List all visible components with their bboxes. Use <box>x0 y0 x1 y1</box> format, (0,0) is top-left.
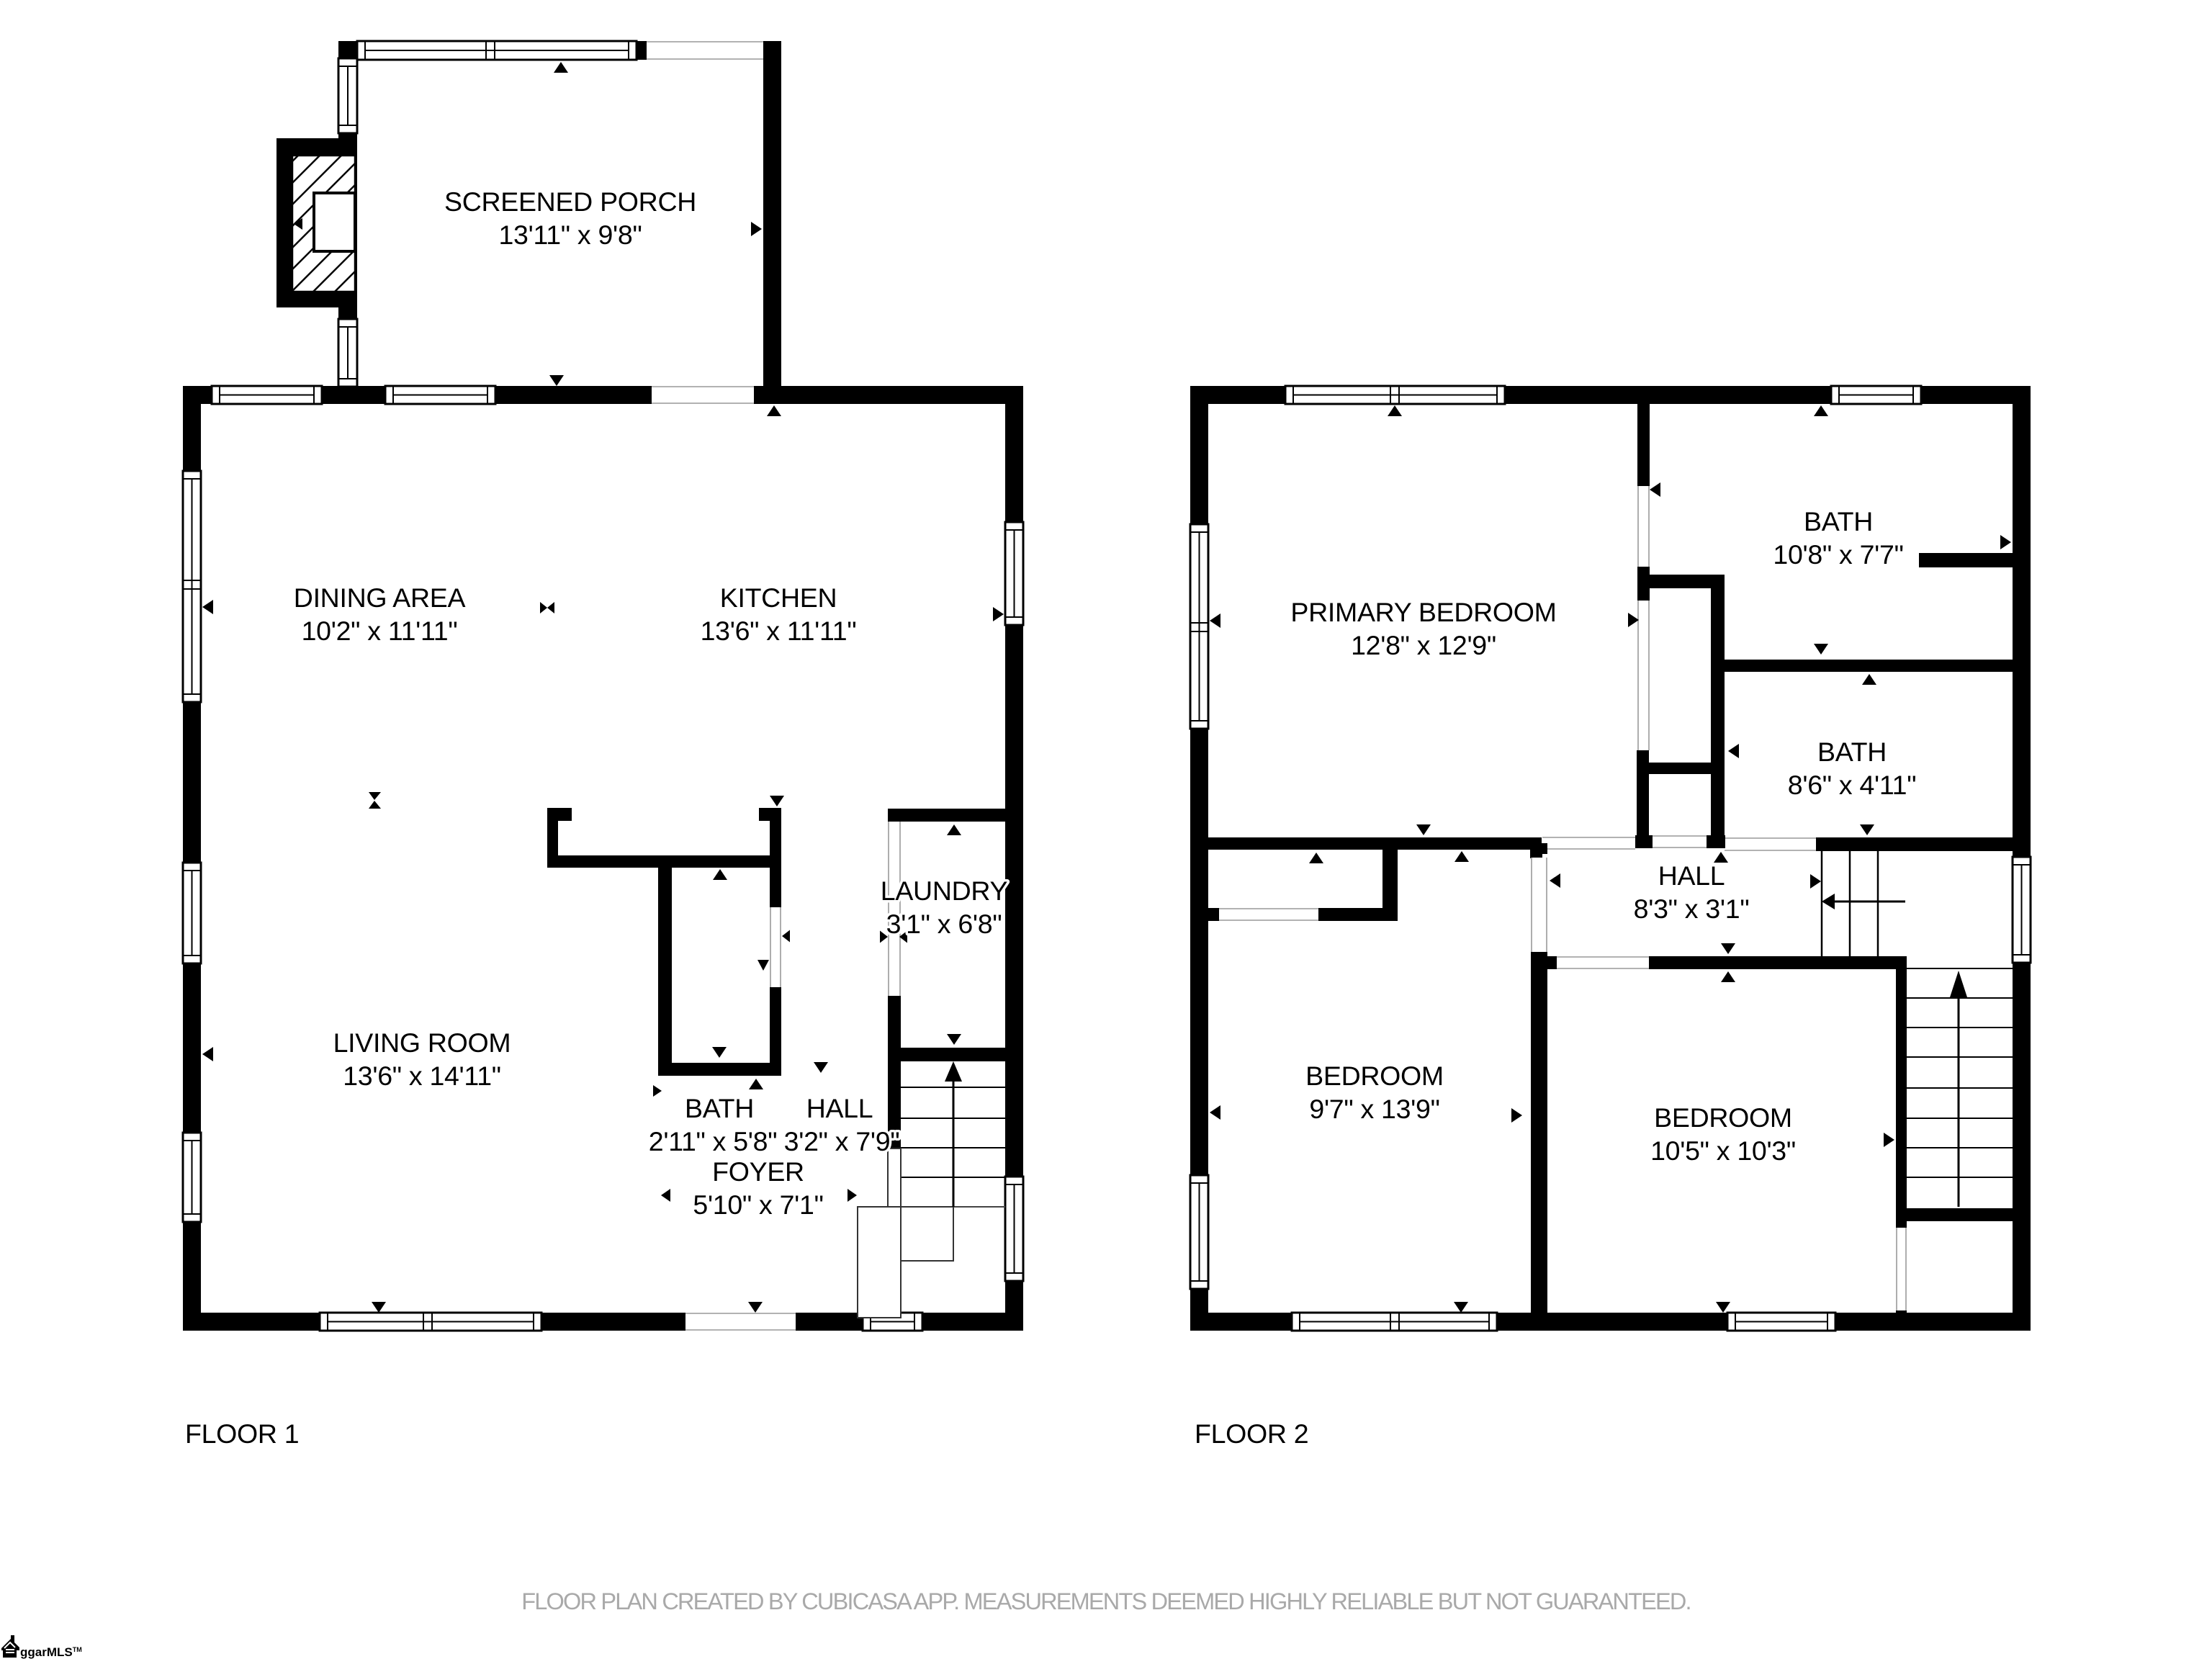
svg-text:FOYER: FOYER <box>712 1156 804 1187</box>
svg-text:13'6" x 11'11": 13'6" x 11'11" <box>701 616 857 646</box>
svg-text:12'8" x 12'9": 12'8" x 12'9" <box>1351 630 1496 660</box>
svg-text:13'6" x 14'11": 13'6" x 14'11" <box>343 1061 501 1091</box>
svg-text:FLOOR PLAN CREATED BY CUBICASA: FLOOR PLAN CREATED BY CUBICASA APP. MEAS… <box>521 1588 1691 1614</box>
svg-text:FLOOR 1: FLOOR 1 <box>185 1419 299 1449</box>
svg-text:DINING AREA: DINING AREA <box>294 583 466 613</box>
svg-text:BATH: BATH <box>1817 737 1887 767</box>
svg-text:BATH: BATH <box>685 1093 754 1123</box>
svg-text:10'2" x 11'11": 10'2" x 11'11" <box>302 616 458 646</box>
svg-text:BEDROOM: BEDROOM <box>1305 1061 1444 1091</box>
svg-text:LIVING ROOM: LIVING ROOM <box>333 1028 511 1058</box>
svg-text:BEDROOM: BEDROOM <box>1654 1102 1792 1133</box>
svg-text:LAUNDRY: LAUNDRY <box>881 876 1008 906</box>
svg-text:FLOOR 2: FLOOR 2 <box>1195 1419 1308 1449</box>
svg-text:10'8" x 7'7": 10'8" x 7'7" <box>1773 539 1903 570</box>
svg-text:HALL: HALL <box>806 1093 873 1123</box>
svg-text:3'2" x 7'9": 3'2" x 7'9" <box>784 1126 900 1156</box>
svg-text:9'7" x 13'9": 9'7" x 13'9" <box>1309 1094 1439 1124</box>
svg-text:5'10" x 7'1": 5'10" x 7'1" <box>693 1190 823 1220</box>
svg-text:3'1" x 6'8": 3'1" x 6'8" <box>886 909 1002 939</box>
svg-text:PRIMARY BEDROOM: PRIMARY BEDROOM <box>1290 597 1556 627</box>
svg-text:2'11" x 5'8": 2'11" x 5'8" <box>649 1126 777 1156</box>
svg-text:BATH: BATH <box>1804 506 1873 536</box>
svg-text:HALL: HALL <box>1658 860 1725 891</box>
svg-text:8'3" x 3'1": 8'3" x 3'1" <box>1634 894 1750 924</box>
svg-text:13'11" x 9'8": 13'11" x 9'8" <box>499 220 642 250</box>
svg-text:8'6" x 4'11": 8'6" x 4'11" <box>1788 770 1916 800</box>
svg-text:KITCHEN: KITCHEN <box>720 583 837 613</box>
svg-text:SCREENED PORCH: SCREENED PORCH <box>444 186 696 217</box>
svg-text:ggarMLSTM: ggarMLSTM <box>20 1645 82 1659</box>
svg-text:10'5" x 10'3": 10'5" x 10'3" <box>1650 1136 1796 1166</box>
